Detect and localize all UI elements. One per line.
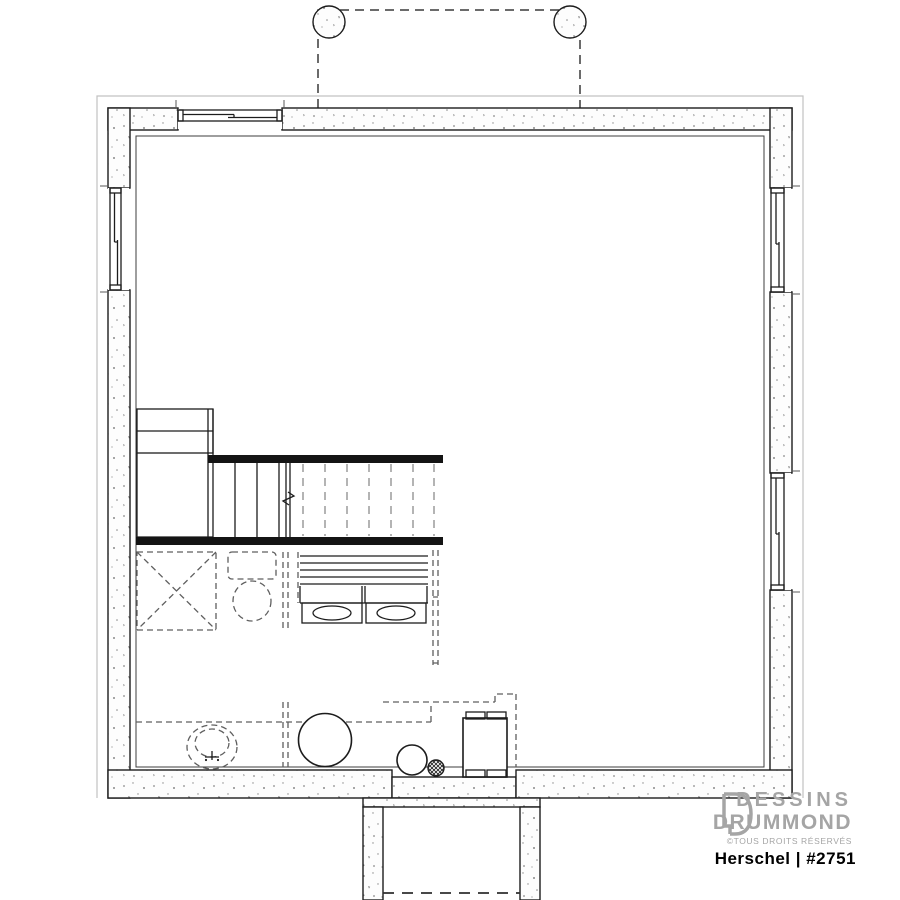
laundry-tub <box>187 725 237 769</box>
foundation-walls <box>108 108 792 900</box>
half-wall-lower <box>136 537 443 545</box>
porch-post-right <box>554 6 586 38</box>
window-top <box>178 109 282 129</box>
future-toilet <box>228 552 276 621</box>
stair-treads-dashed <box>303 464 434 536</box>
window-right-upper <box>771 188 791 292</box>
vanity-double-sink <box>298 552 428 623</box>
footing-outline <box>97 96 803 798</box>
interior-wall-finish-line <box>136 136 764 767</box>
storage-shelves <box>137 409 213 537</box>
plan-title: Herschel | #2751 <box>715 849 856 869</box>
brand-block: DESSINS DRUMMOND ©TOUS DROITS RÉSERVÉS <box>713 790 860 846</box>
stair-treads-solid <box>235 463 290 537</box>
water-heater <box>299 714 352 767</box>
floor-plan-page: DESSINS DRUMMOND ©TOUS DROITS RÉSERVÉS H… <box>0 0 900 900</box>
window-ticks <box>100 100 800 592</box>
window-left <box>108 188 129 290</box>
porch-post-left <box>313 6 345 38</box>
future-shower <box>137 552 216 630</box>
pressure-tank <box>397 745 427 775</box>
plan-canvas <box>0 0 900 900</box>
half-wall-upper <box>208 455 443 463</box>
drummond-d-monogram-icon <box>713 790 753 840</box>
staircase <box>136 409 443 545</box>
porch-above-outline <box>318 10 580 108</box>
stair-break-line <box>283 492 294 505</box>
furnace <box>463 712 507 777</box>
floor-drain <box>428 760 444 776</box>
window-right-lower <box>771 473 791 590</box>
